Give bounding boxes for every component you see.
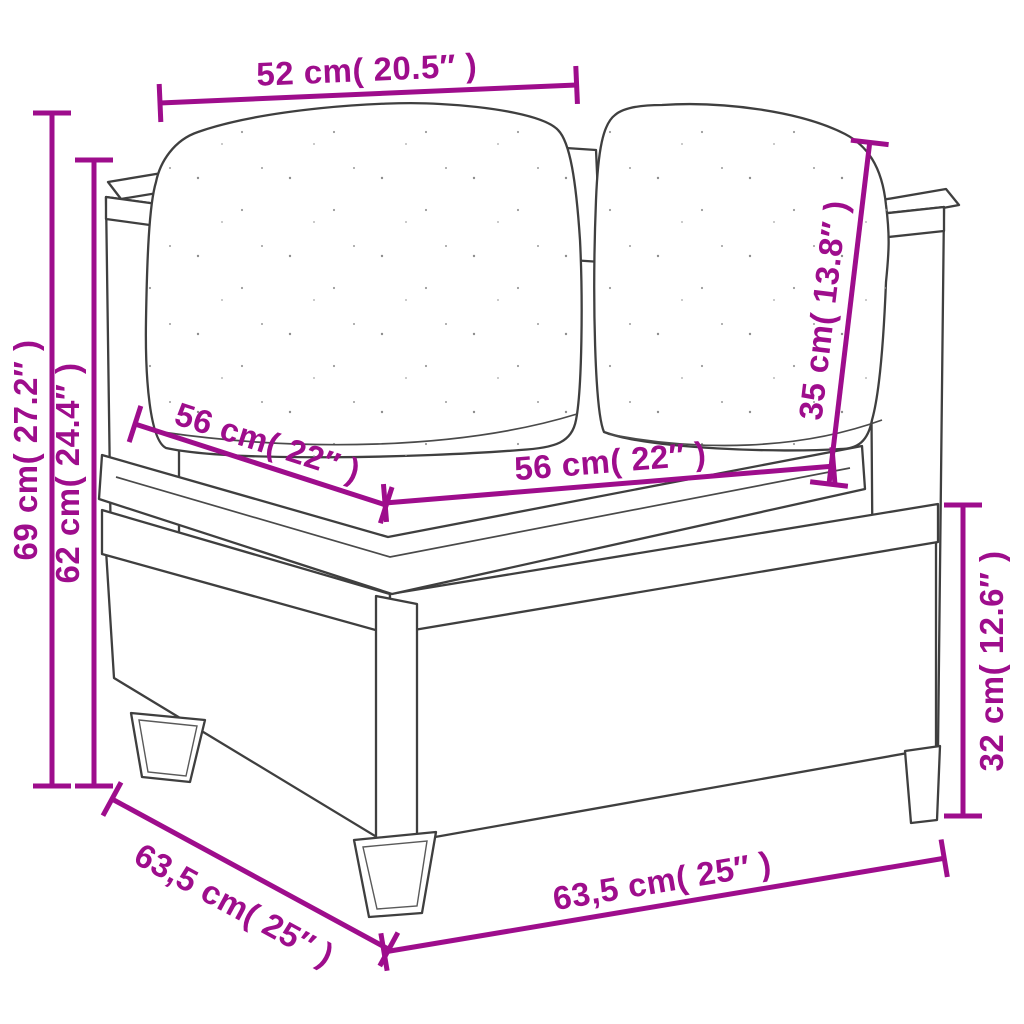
dimension-label: 62 cm( 24.4″ ) [49,363,86,584]
dimension-base-height: 32 cm( 12.6″ ) [944,505,1010,816]
dimension-label: 32 cm( 12.6″ ) [973,551,1010,772]
corner-sofa-dimension-diagram: 52 cm( 20.5″ ) 69 cm( 27.2″ ) 62 cm( 24.… [0,0,1024,1024]
tick-start [383,484,386,522]
tick-start [159,84,161,122]
product-dimension-image: 52 cm( 20.5″ ) 69 cm( 27.2″ ) 62 cm( 24.… [0,0,1024,1024]
tick-end [576,66,578,104]
dimension-width-total: 63,5 cm( 25″ ) [377,816,947,971]
base-corner-post [376,596,417,849]
leg-front-corner [354,832,436,917]
dimension-label: 69 cm( 27.2″ ) [7,340,44,561]
dimension-label: 52 cm( 20.5″ ) [256,46,478,93]
leg-right [905,746,940,823]
tick-end [941,840,947,877]
